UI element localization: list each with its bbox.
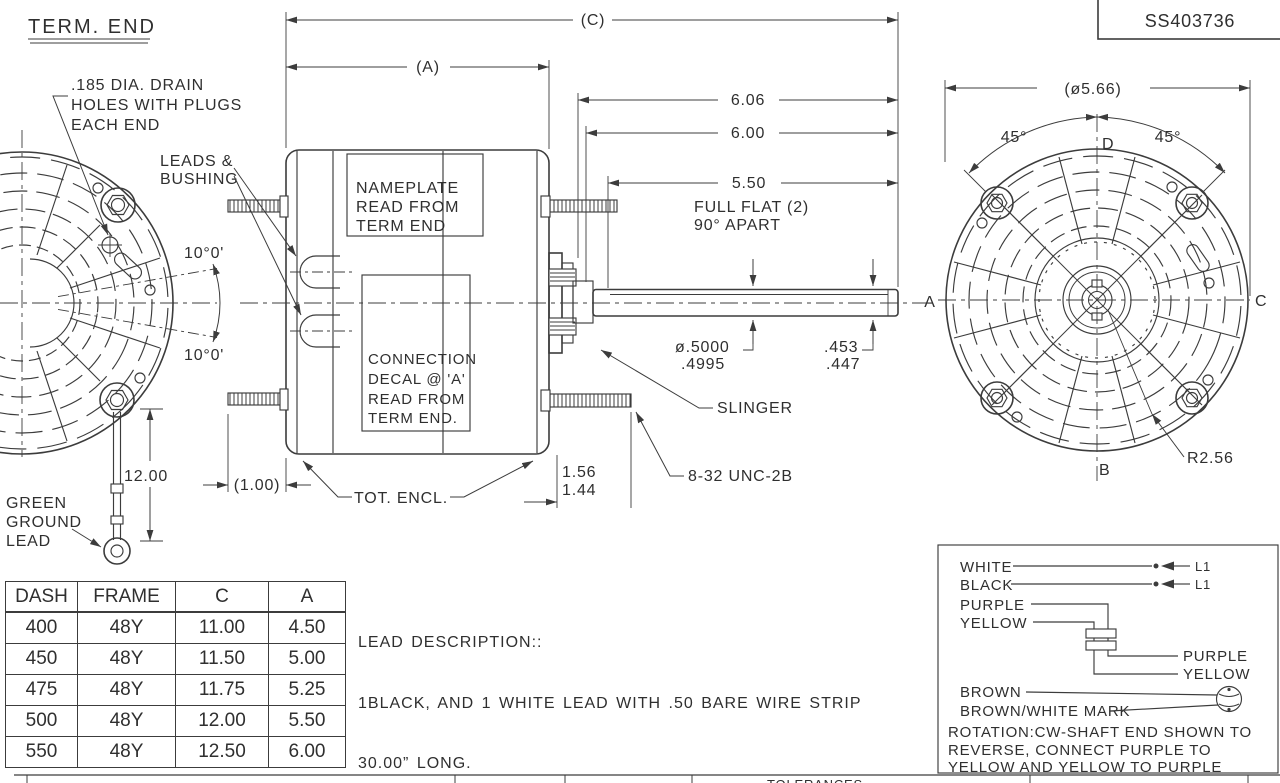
axis-label-c: C [1255, 293, 1267, 310]
table-cell: 500 [6, 706, 78, 737]
slinger-label: SLINGER [717, 400, 793, 417]
dim-shaft-dia-1: ø.5000 [675, 339, 730, 356]
table-cell: 48Y [78, 612, 176, 644]
part-number: SS403736 [1145, 11, 1235, 31]
ground-lead [104, 412, 130, 564]
table-cell: 5.25 [269, 675, 346, 706]
spec-table: DASH FRAME C A 400 48Y 11.00 4.50 450 48… [5, 581, 346, 768]
nameplate-line3: TERM END [356, 218, 446, 235]
lead-desc-line: 1BLACK, AND 1 WHITE LEAD WITH .50 BARE W… [358, 694, 955, 714]
rotation-line3: YELLOW AND YELLOW TO PURPLE [948, 759, 1222, 776]
plug-icon [1161, 580, 1174, 589]
weep-hole [145, 285, 155, 295]
full-flat-line1: FULL FLAT (2) [694, 199, 809, 216]
drain-line2: HOLES WITH PLUGS [71, 97, 242, 114]
plug-icon [1161, 562, 1174, 571]
dim-face-dia: (ø5.66) [1064, 81, 1121, 98]
dim-bolt-radius: R2.56 [1187, 450, 1234, 467]
dim-shaft-dia-2: .4995 [681, 356, 725, 373]
dimensions-side: (C) (A) 6.06 6.00 5.50 FULL FLAT (2) 90°… [203, 12, 936, 508]
part-number-box: SS403736 [1098, 0, 1280, 39]
table-cell: 48Y [78, 644, 176, 675]
tot-encl-label: TOT. ENCL. [354, 490, 448, 507]
view-title: TERM. END [28, 16, 156, 43]
connection-decal: CONNECTION DECAL @ 'A' READ FROM TERM EN… [362, 275, 477, 431]
decal-line4: TERM END. [368, 410, 458, 427]
dim-12-00: 12.00 [124, 468, 168, 485]
table-cell: 400 [6, 612, 78, 644]
decal-line2: DECAL @ 'A' [368, 371, 466, 388]
table-row: 450 48Y 11.50 5.00 [6, 644, 346, 675]
table-cell: 11.00 [176, 612, 269, 644]
col-a: A [269, 582, 346, 613]
pull-apart-plug [1086, 641, 1116, 650]
lead-bushings [290, 256, 352, 347]
table-cell: 48Y [78, 675, 176, 706]
wire-yellow-right-label: YELLOW [1183, 666, 1250, 683]
drain-line3: EACH END [71, 117, 160, 134]
axis-label-b: B [1099, 462, 1110, 479]
table-row: 475 48Y 11.75 5.25 [6, 675, 346, 706]
dim-45-right: 45° [1155, 129, 1182, 146]
col-c: C [176, 582, 269, 613]
dim-prot-2: 1.44 [562, 482, 596, 499]
dim-5-50: 5.50 [732, 175, 766, 192]
table-cell: 48Y [78, 737, 176, 768]
vent-slot [112, 250, 144, 281]
table-row: 500 48Y 12.00 5.50 [6, 706, 346, 737]
lead-desc-line: LEAD DESCRIPTION:: [358, 633, 955, 653]
nameplate-line1: NAMEPLATE [356, 180, 459, 197]
dim-flat-2: .447 [826, 356, 860, 373]
table-cell: 11.75 [176, 675, 269, 706]
table-cell: 5.50 [269, 706, 346, 737]
wire-white-label: WHITE [960, 559, 1012, 576]
table-cell: 12.00 [176, 706, 269, 737]
dim-angle-upper: 10°0' [184, 245, 224, 262]
dim-prot-1: 1.56 [562, 464, 596, 481]
decal-line1: CONNECTION [368, 351, 477, 368]
l1-bottom-label: L1 [1195, 577, 1211, 592]
term-end-label: TERM. END [28, 16, 156, 38]
leads-line1: LEADS & [160, 153, 233, 170]
nameplate: NAMEPLATE READ FROM TERM END [347, 154, 483, 236]
full-flat-line2: 90° APART [694, 217, 781, 234]
col-frame: FRAME [78, 582, 176, 613]
axis-label-a: A [924, 294, 935, 311]
green-label: GREEN [6, 495, 67, 512]
dim-45-left: 45° [1001, 129, 1028, 146]
engineering-drawing: TERM. END SS403736 [0, 0, 1280, 783]
dim-stud-len: (1.00) [234, 477, 281, 494]
table-cell: 550 [6, 737, 78, 768]
shaft-end-view: (ø5.66) 45° 45° D B C R2.56 [896, 80, 1280, 501]
decal-line3: READ FROM [368, 391, 465, 408]
table-cell: 12.50 [176, 737, 269, 768]
axis-label-d: D [1102, 136, 1114, 153]
rotation-line1: ROTATION:CW-SHAFT END SHOWN TO [948, 724, 1252, 741]
table-cell: 11.50 [176, 644, 269, 675]
rotation-line2: REVERSE, CONNECT PURPLE TO [948, 742, 1211, 759]
lead-label: LEAD [6, 533, 51, 550]
l1-top-label: L1 [1195, 559, 1211, 574]
dimensions-right: (ø5.66) 45° 45° D B C R2.56 [945, 80, 1267, 479]
dim-6-06: 6.06 [731, 92, 765, 109]
wire-brown-white-label: BROWN/WHITE MARK [960, 703, 1130, 720]
table-cell: 450 [6, 644, 78, 675]
table-cell: 6.00 [269, 737, 346, 768]
table-row: 550 48Y 12.50 6.00 [6, 737, 346, 768]
table-cell: 475 [6, 675, 78, 706]
dim-angle-lower: 10°0' [184, 347, 224, 364]
leads-line2: BUSHING [160, 171, 239, 188]
dim-flat-1: .453 [824, 339, 858, 356]
capacitor-icon [1217, 687, 1242, 712]
thread-label: 8-32 UNC-2B [688, 468, 793, 485]
mounting-bolt-top [93, 183, 135, 222]
table-cell: 48Y [78, 706, 176, 737]
dim-ground-length: 12.00 [124, 409, 168, 541]
pull-apart-plug [1086, 629, 1116, 638]
dim-c-ref: (C) [581, 12, 606, 29]
table-row: 400 48Y 11.00 4.50 [6, 612, 346, 644]
ground-label: GROUND [6, 514, 82, 531]
nameplate-line2: READ FROM [356, 199, 459, 216]
table-cell: 4.50 [269, 612, 346, 644]
green-ground-lead-callout: GREEN GROUND LEAD [6, 495, 101, 550]
wire-purple-label: PURPLE [960, 597, 1025, 614]
col-dash: DASH [6, 582, 78, 613]
dim-a-ref: (A) [416, 59, 440, 76]
lead-desc-line: 30.00” LONG. [358, 754, 955, 774]
lead-description: LEAD DESCRIPTION:: 1BLACK, AND 1 WHITE L… [358, 593, 955, 783]
table-header-row: DASH FRAME C A [6, 582, 346, 613]
drain-line1: .185 DIA. DRAIN [71, 77, 204, 94]
mounting-bolt-bottom [100, 373, 145, 417]
table-cell: 5.00 [269, 644, 346, 675]
wire-black-label: BLACK [960, 577, 1013, 594]
dim-6-00: 6.00 [731, 125, 765, 142]
wire-yellow-label: YELLOW [960, 615, 1027, 632]
leads-bushing-callout: LEADS & BUSHING [160, 153, 301, 315]
wire-brown-label: BROWN [960, 684, 1022, 701]
wire-purple-right-label: PURPLE [1183, 648, 1248, 665]
side-view: NAMEPLATE READ FROM TERM END CONNECTION … [228, 150, 934, 454]
wiring-diagram: WHITE L1 BLACK L1 PURPLE YELLOW PURPLE Y… [938, 545, 1278, 776]
